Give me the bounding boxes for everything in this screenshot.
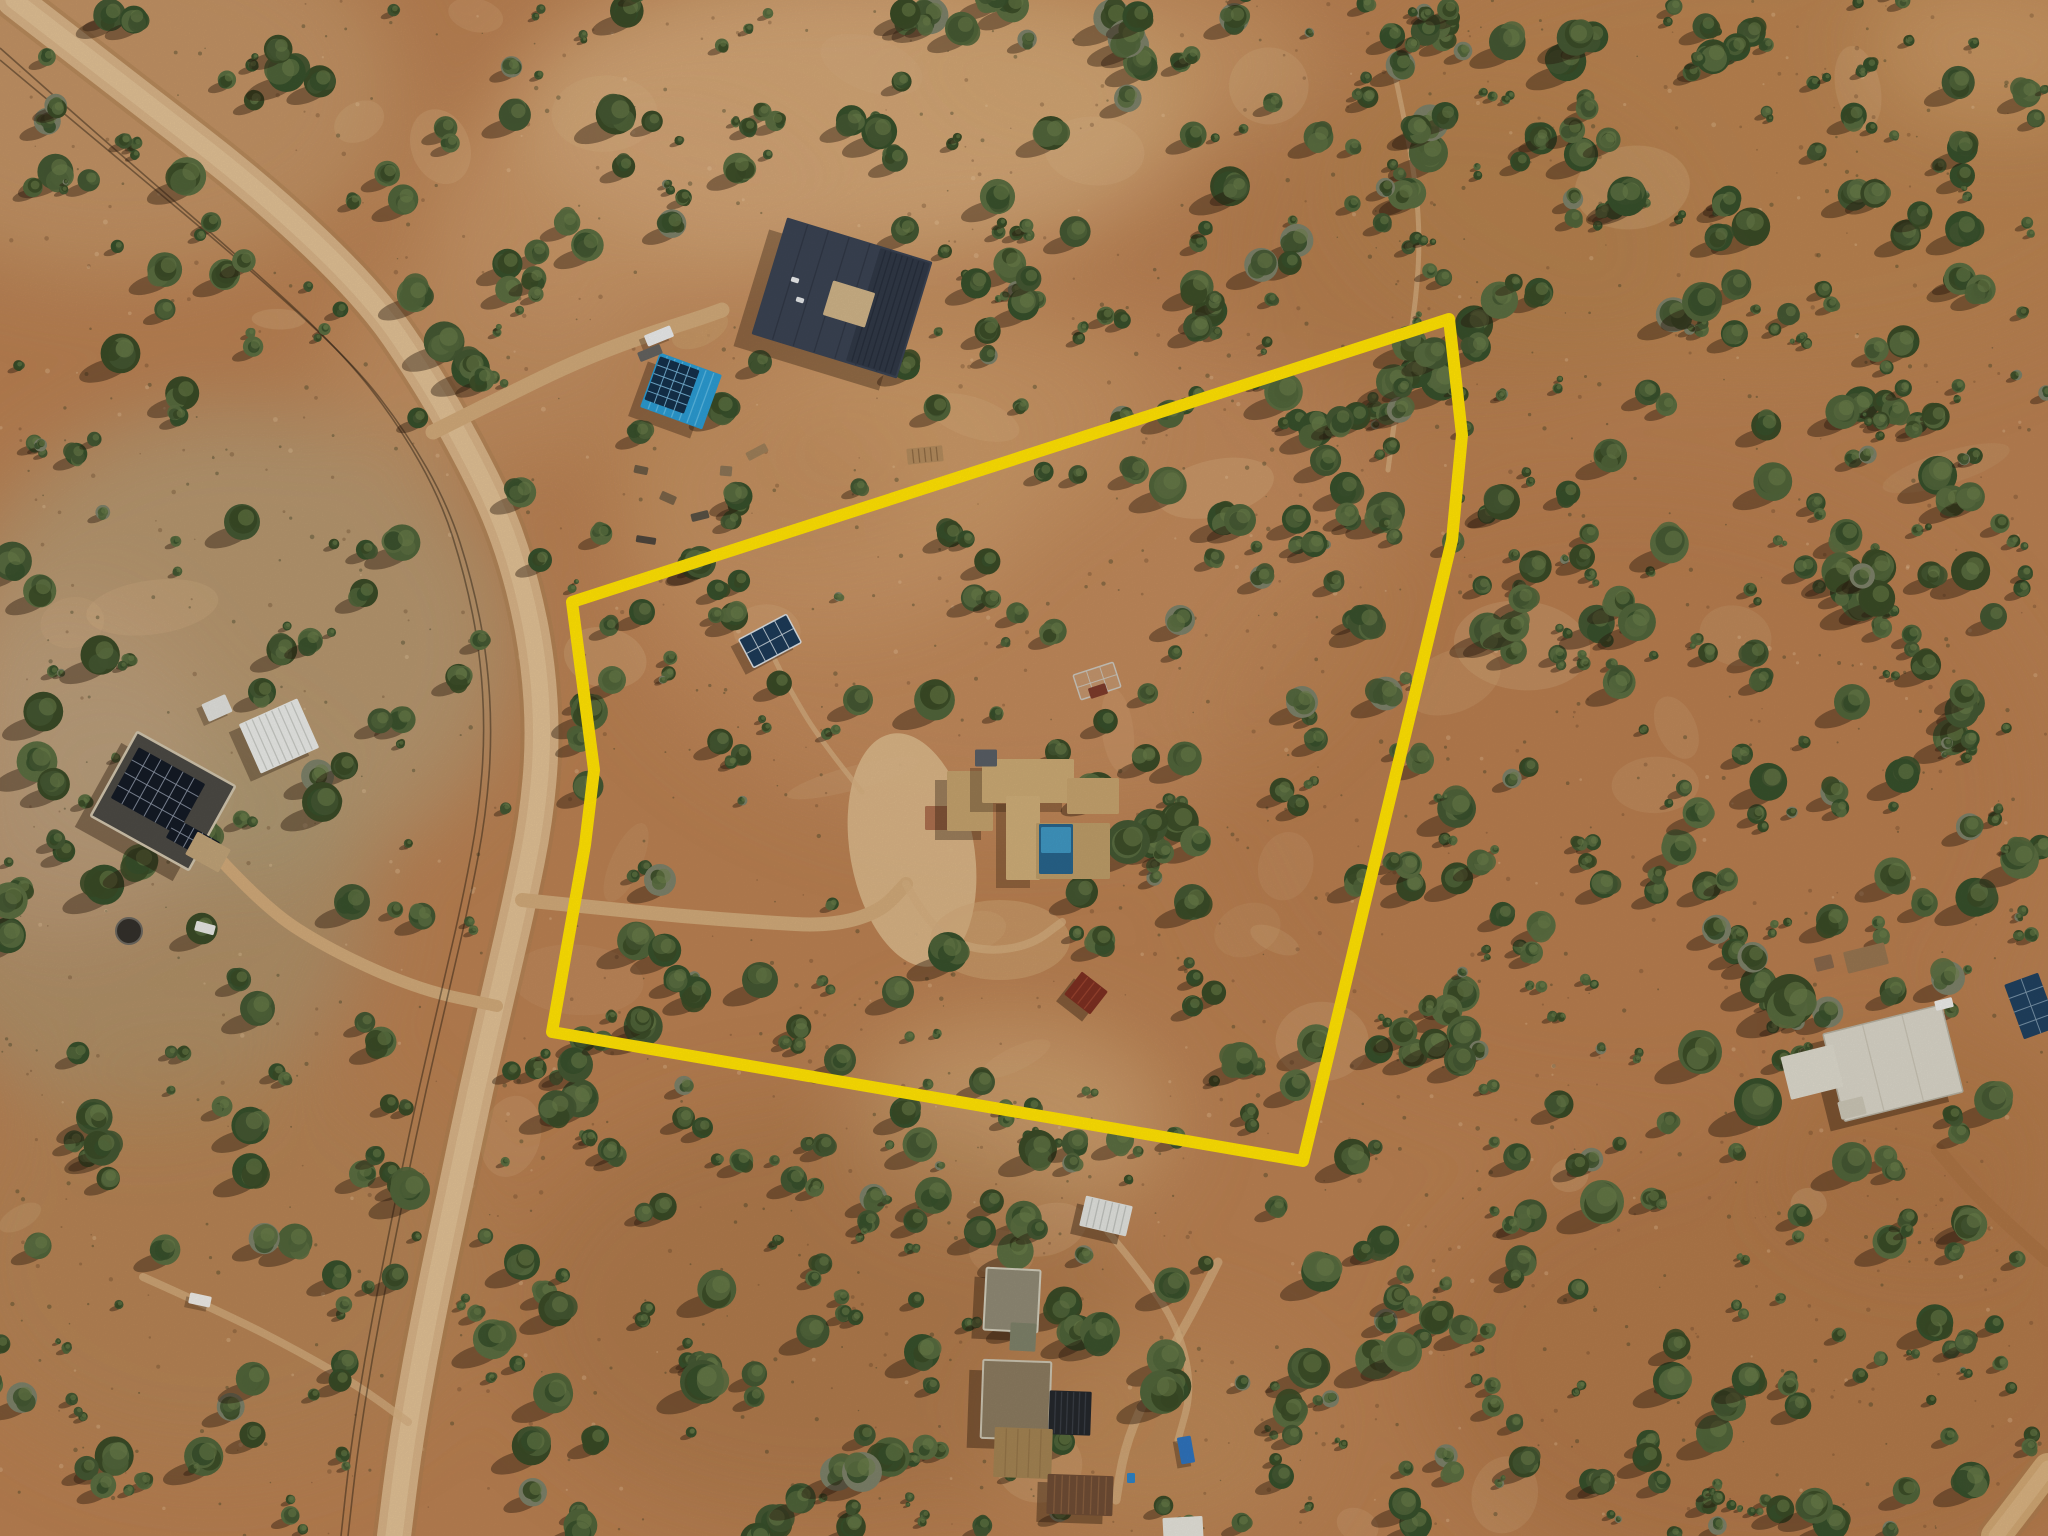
aerial-photo: Aerial drone photo of a high-desert prop… [0,0,2048,1536]
aerial-photo-canvas: Aerial drone photo of a high-desert prop… [0,0,2048,1536]
film-grain-overlay [0,0,2048,1536]
